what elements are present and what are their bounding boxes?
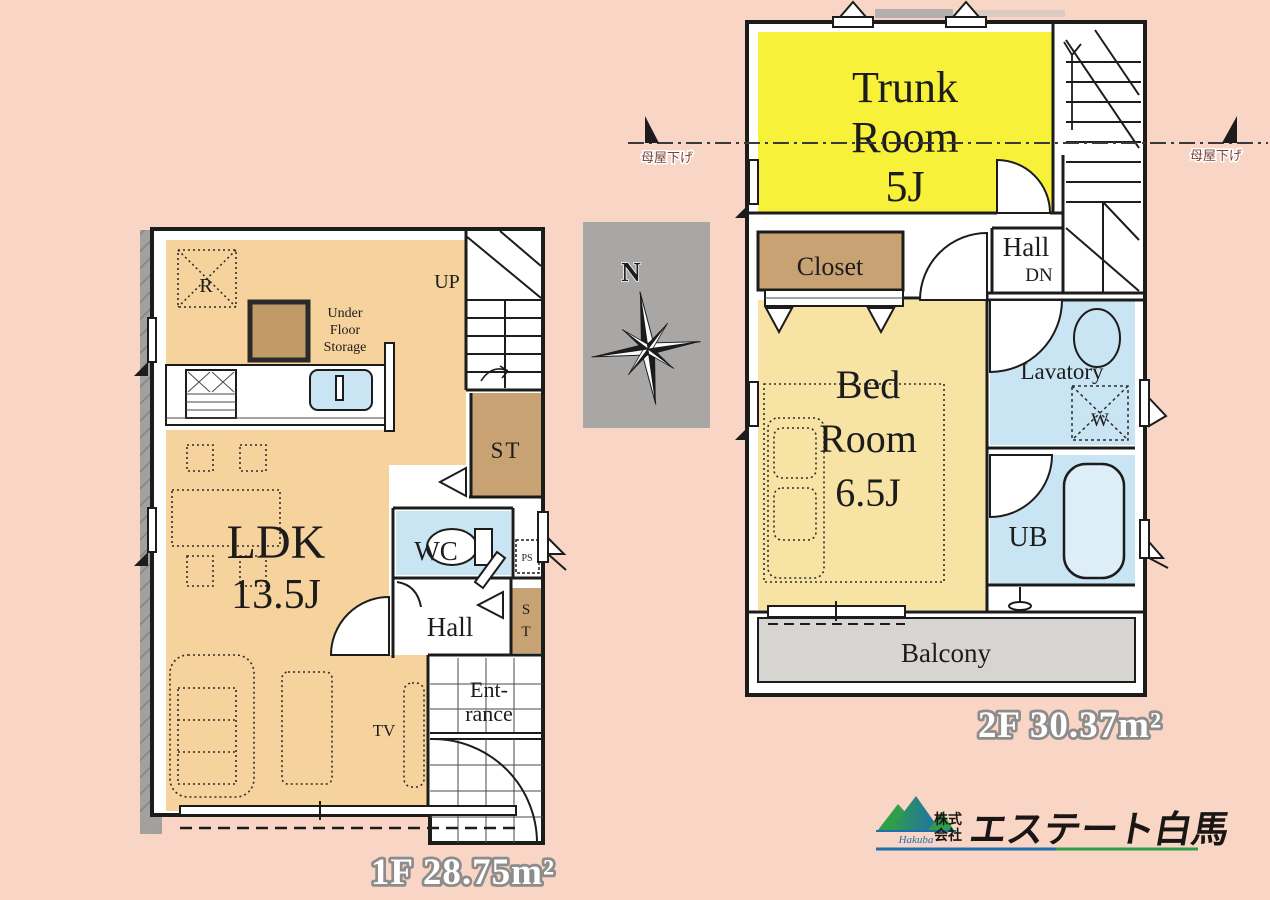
faucet-icon — [336, 376, 343, 400]
sliding-window — [180, 806, 516, 815]
bedroom-label-2: Room — [819, 416, 917, 461]
floor2-plan: Trunk Room 5J Closet Bed Room 6.5J Hall … — [735, 2, 1168, 695]
trunk-room-label-3: 5J — [885, 162, 924, 211]
lavatory-label: Lavatory — [1020, 359, 1104, 384]
storage-side-label-s: S — [522, 602, 530, 618]
stairs-up-label: UP — [434, 271, 460, 293]
wall-stub — [385, 343, 394, 431]
floor1-plan: UP R Under Floor Storage LDK 13.5J WC Ha… — [134, 229, 566, 843]
balcony-label: Balcony — [901, 638, 991, 668]
ldk-label: LDK — [227, 516, 326, 569]
entrance-label-1: Ent- — [470, 677, 508, 702]
compass-north-label: N — [621, 257, 641, 287]
storage-side-label-t: T — [521, 624, 530, 640]
stairs-down-label: DN — [1025, 265, 1053, 286]
bedroom-label-1: Bed — [836, 362, 900, 407]
entrance-label-2: rance — [465, 701, 513, 726]
unit-bath-label: UB — [1009, 522, 1048, 553]
washer-label: W — [1091, 410, 1109, 431]
wc-label: WC — [414, 536, 458, 566]
bathtub-icon — [1064, 464, 1124, 578]
vent-flag-icon — [840, 2, 866, 17]
floor-plan-sheet: UP R Under Floor Storage LDK 13.5J WC Ha… — [0, 0, 1270, 900]
refrigerator-label: R — [199, 275, 213, 297]
hall-label-2f: Hall — [1003, 232, 1050, 262]
underfloor-label-2: Floor — [330, 323, 361, 338]
logo-company-name: エステート白馬 — [967, 808, 1233, 850]
floor2-area-label: 2F 30.37m² — [978, 705, 1162, 746]
logo-romaji: Hakuba — [898, 834, 934, 846]
tv-label: TV — [373, 721, 396, 740]
floor-plan-drawing: UP R Under Floor Storage LDK 13.5J WC Ha… — [0, 0, 1270, 900]
window-flag-icon — [1149, 542, 1163, 558]
underfloor-label-3: Storage — [324, 340, 367, 355]
storage-side-fill — [512, 588, 541, 653]
window-flag-icon — [735, 204, 749, 218]
underfloor-label-1: Under — [328, 306, 363, 321]
slope-flag-icon — [1222, 116, 1237, 143]
bedroom-label-3: 6.5J — [835, 470, 901, 515]
trunk-room-label-1: Trunk — [852, 63, 958, 112]
floor1-area-label: 1F 28.75m² — [371, 852, 555, 893]
ldk-size-label: 13.5J — [231, 572, 321, 618]
kitchen-counter — [166, 365, 389, 425]
logo-prefix-top: 株式 — [934, 811, 962, 827]
pipe-space-label: PS — [521, 553, 532, 564]
window-flag-icon — [1149, 398, 1166, 426]
logo-prefix-bottom: 会社 — [934, 827, 962, 843]
closet-label: Closet — [797, 252, 864, 281]
company-logo: Hakuba 株式 会社 エステート白馬 — [876, 796, 1233, 850]
under-floor-storage-hatch — [250, 302, 308, 360]
slope-flag-icon — [645, 116, 659, 143]
hall-label-1f: Hall — [427, 612, 474, 642]
vent-flag-icon — [953, 2, 979, 17]
window-flag-icon — [735, 426, 749, 440]
trunk-room-label-2: Room — [851, 113, 959, 162]
window-flag-icon — [548, 538, 564, 554]
ldk-room-fill — [166, 240, 466, 365]
compass: N — [583, 222, 710, 428]
roof-note-left: 母屋下げ — [641, 150, 693, 165]
roof-note-right: 母屋下げ — [1190, 148, 1242, 163]
storage-main-label: ST — [491, 438, 522, 463]
